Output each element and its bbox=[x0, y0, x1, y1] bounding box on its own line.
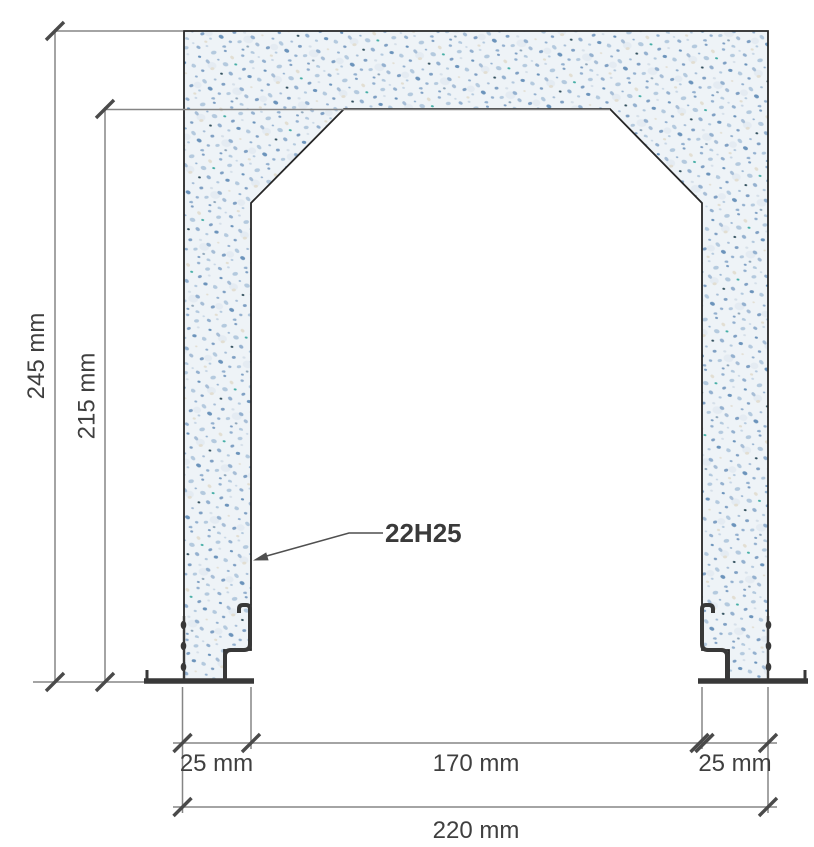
dimension-label-wall-left: 25 mm bbox=[180, 750, 253, 777]
concrete-section bbox=[184, 31, 768, 682]
dimension-label-inner-height: 215 mm bbox=[74, 353, 101, 440]
dimension-label-opening-width: 170 mm bbox=[433, 750, 520, 777]
rebar-leader bbox=[253, 533, 383, 561]
dimension-label-total-height: 245 mm bbox=[23, 313, 50, 400]
dimension-label-wall-right: 25 mm bbox=[698, 750, 771, 777]
leader-arrowhead-icon bbox=[253, 552, 269, 560]
leader-line bbox=[263, 533, 383, 557]
diagram-canvas: 245 mm 215 mm 25 mm 170 mm 25 mm 220 mm … bbox=[0, 0, 814, 847]
rebar-label: 22H25 bbox=[385, 518, 462, 548]
cross-section-diagram: 245 mm 215 mm 25 mm 170 mm 25 mm 220 mm … bbox=[0, 0, 814, 847]
dimension-label-total-width: 220 mm bbox=[433, 817, 520, 844]
